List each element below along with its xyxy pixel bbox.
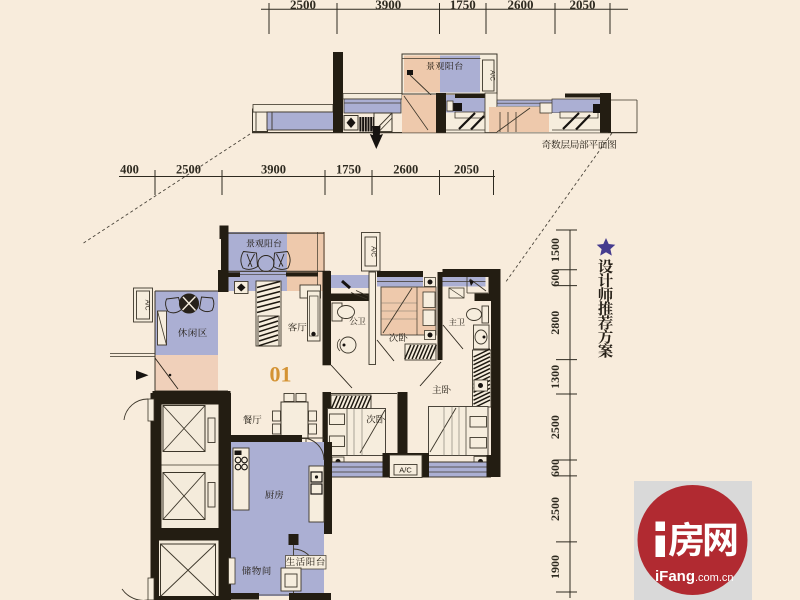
svg-text:A/C: A/C <box>144 300 151 311</box>
svg-text:2500: 2500 <box>548 415 562 439</box>
svg-text:01: 01 <box>270 362 292 387</box>
svg-text:400: 400 <box>120 163 139 177</box>
svg-text:2500: 2500 <box>548 497 562 521</box>
svg-text:1500: 1500 <box>548 238 562 262</box>
svg-text:1900: 1900 <box>548 555 562 579</box>
svg-text:2600: 2600 <box>393 163 418 177</box>
svg-text:3900: 3900 <box>261 163 286 177</box>
svg-text:3900: 3900 <box>375 0 401 12</box>
svg-text:2050: 2050 <box>570 0 596 12</box>
svg-text:600: 600 <box>548 269 562 287</box>
svg-text:2800: 2800 <box>548 311 562 335</box>
svg-text:A/C: A/C <box>399 466 412 475</box>
svg-text:2050: 2050 <box>454 163 479 177</box>
svg-text:2500: 2500 <box>290 0 316 12</box>
svg-text:600: 600 <box>548 459 562 477</box>
svg-text:A/C: A/C <box>370 246 377 257</box>
svg-text:1750: 1750 <box>450 0 476 12</box>
svg-text:1300: 1300 <box>548 365 562 389</box>
svg-text:A/C: A/C <box>489 70 496 81</box>
svg-text:1750: 1750 <box>336 163 361 177</box>
svg-text:2600: 2600 <box>508 0 534 12</box>
